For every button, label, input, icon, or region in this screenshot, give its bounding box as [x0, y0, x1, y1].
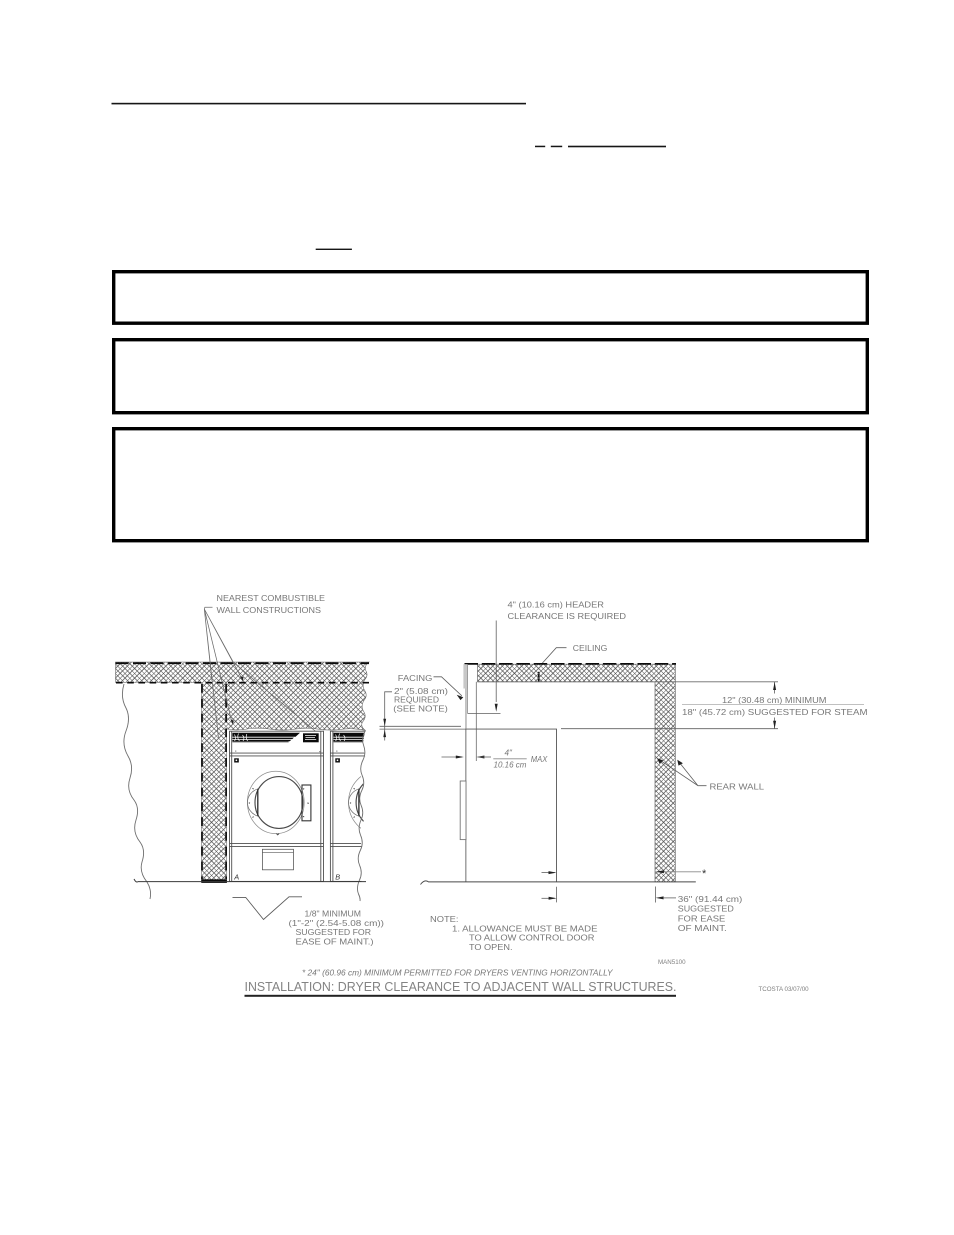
svg-text:*: *	[702, 868, 707, 880]
svg-text:(1"-2" (2.54-5.08 cm)): (1"-2" (2.54-5.08 cm))	[289, 919, 385, 928]
svg-text:FACING: FACING	[398, 674, 433, 683]
svg-text:TO OPEN.: TO OPEN.	[469, 943, 513, 952]
svg-text:REQUIRED: REQUIRED	[394, 696, 439, 705]
svg-text:B: B	[335, 872, 340, 881]
svg-text:NOTE:: NOTE:	[430, 915, 459, 924]
svg-text:MAN5100: MAN5100	[658, 959, 686, 966]
svg-text:A: A	[233, 872, 239, 881]
svg-text:INSTALLATION: DRYER CLEARANCE: INSTALLATION: DRYER CLEARANCE TO ADJACEN…	[245, 979, 677, 994]
svg-text:* 24" (60.96 cm) MINIMUM PERMI: * 24" (60.96 cm) MINIMUM PERMITTED FOR D…	[302, 968, 613, 977]
svg-text:SUGGESTED: SUGGESTED	[678, 905, 734, 914]
svg-text:SUGGESTED FOR: SUGGESTED FOR	[296, 928, 372, 937]
svg-text:OF MAINT.: OF MAINT.	[678, 924, 727, 933]
svg-text:REAR WALL: REAR WALL	[710, 782, 765, 791]
svg-text:WALL CONSTRUCTIONS: WALL CONSTRUCTIONS	[217, 606, 322, 615]
svg-text:MAX: MAX	[531, 755, 548, 764]
svg-text:18" (45.72 cm) SUGGESTED FOR S: 18" (45.72 cm) SUGGESTED FOR STEAM	[682, 708, 868, 717]
svg-text:NEAREST COMBUSTIBLE: NEAREST COMBUSTIBLE	[217, 594, 326, 603]
svg-text:EASE OF MAINT.): EASE OF MAINT.)	[296, 938, 374, 947]
svg-text:1/8" MINIMUM: 1/8" MINIMUM	[305, 909, 362, 918]
svg-text:FOR EASE: FOR EASE	[678, 914, 726, 923]
svg-text:12" (30.48 cm) MINIMUM: 12" (30.48 cm) MINIMUM	[722, 696, 827, 705]
svg-text:TO ALLOW CONTROL DOOR: TO ALLOW CONTROL DOOR	[469, 934, 595, 943]
svg-text:10.16 cm: 10.16 cm	[494, 760, 527, 769]
svg-text:1. ALLOWANCE MUST BE MADE: 1. ALLOWANCE MUST BE MADE	[452, 924, 598, 933]
svg-text:36" (91.44 cm): 36" (91.44 cm)	[678, 895, 743, 904]
svg-text:CEILING: CEILING	[573, 644, 608, 653]
svg-text:4": 4"	[505, 748, 514, 757]
svg-text:4" (10.16 cm) HEADER: 4" (10.16 cm) HEADER	[508, 601, 605, 610]
svg-text:TCOSTA 03/07/00: TCOSTA 03/07/00	[759, 986, 810, 993]
svg-text:(SEE NOTE): (SEE NOTE)	[393, 705, 448, 714]
svg-text:CLEARANCE IS REQUIRED: CLEARANCE IS REQUIRED	[508, 612, 627, 621]
